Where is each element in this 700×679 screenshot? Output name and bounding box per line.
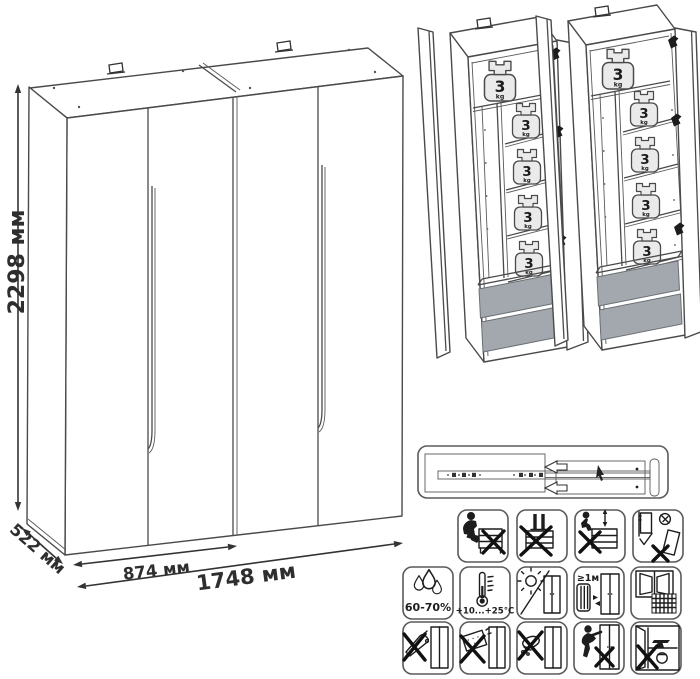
no-standing-icon xyxy=(517,510,567,562)
no-climbing-icon xyxy=(575,509,625,562)
no-direct-sunlight-icon xyxy=(517,567,567,619)
no-sharp-tools-icon xyxy=(403,622,453,674)
no-abrasive-cleaners-icon xyxy=(460,622,510,674)
wardrobe-technical-diagram: 3 kg xyxy=(0,0,700,679)
room-ventilation-icon xyxy=(631,567,681,619)
no-dragging-icon xyxy=(574,622,624,674)
secure-to-wall-icon xyxy=(633,510,683,562)
humidity-value: 60-70% xyxy=(405,601,451,614)
temperature-range-icon: +10...+25°C xyxy=(456,567,515,619)
dimension-full-width: 1748 мм xyxy=(195,559,297,596)
no-heavy-objects-inside-icon xyxy=(631,622,681,674)
min-distance-value: ≥1м xyxy=(577,573,599,584)
humidity-range-icon: 60-70% xyxy=(403,567,453,619)
no-sitting-icon xyxy=(458,510,508,562)
care-instructions-panel: 60-70% +10...+25°C ≥1м xyxy=(403,446,683,674)
heat-source-distance-icon: ≥1м xyxy=(574,567,624,619)
diagram-canvas: 3 kg xyxy=(0,0,700,679)
no-wet-cloth-icon xyxy=(517,622,567,674)
wardrobe-doors-front xyxy=(65,76,403,555)
temperature-value: +10...+25°C xyxy=(456,607,515,617)
drawer-slide-mechanism-icon xyxy=(418,446,668,498)
wardrobe-left-side xyxy=(27,87,67,555)
closed-wardrobe-drawing xyxy=(27,41,403,555)
dimension-height: 2298 мм xyxy=(5,210,30,315)
